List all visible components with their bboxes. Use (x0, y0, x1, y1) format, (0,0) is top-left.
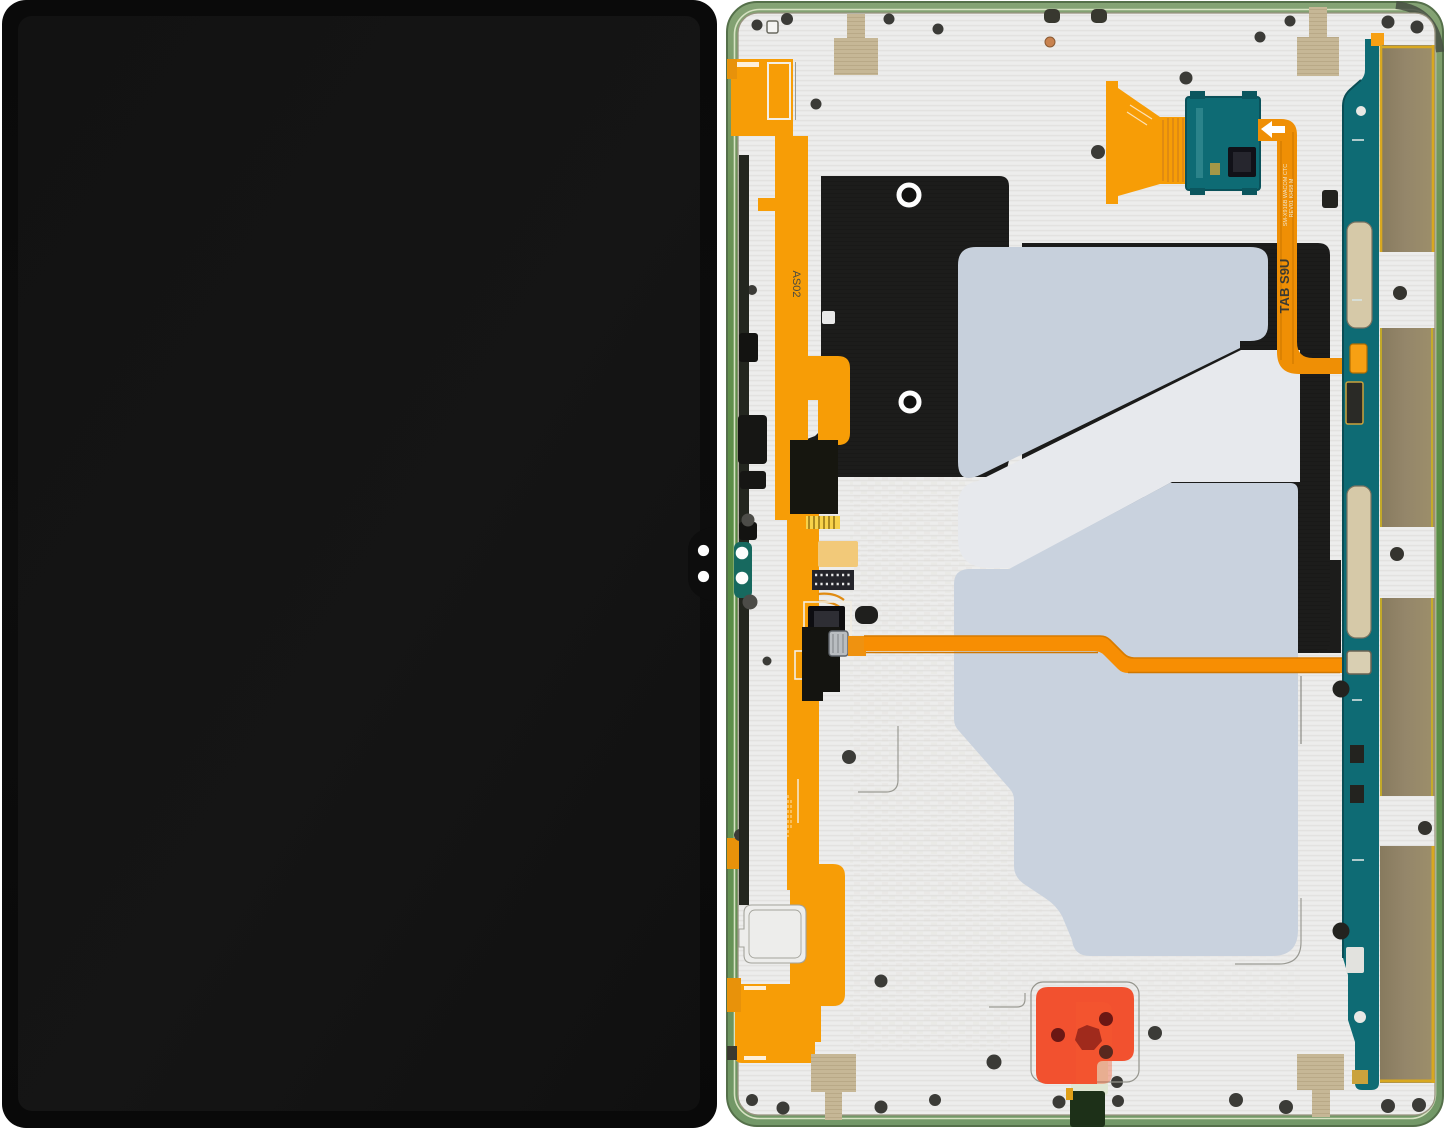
svg-text:TAB S9U: TAB S9U (1277, 259, 1292, 314)
svg-text:AS02: AS02 (790, 271, 802, 298)
svg-text:REV01 KH58 M: REV01 KH58 M (1289, 178, 1295, 217)
